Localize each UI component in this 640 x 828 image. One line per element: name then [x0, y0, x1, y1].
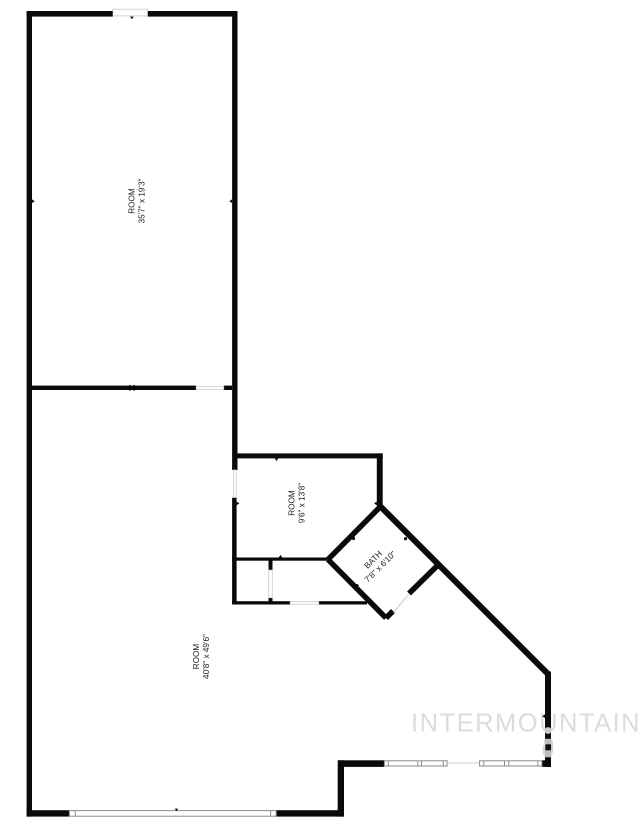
svg-text:INTERMOUNTAIN: INTERMOUNTAIN — [411, 710, 640, 738]
